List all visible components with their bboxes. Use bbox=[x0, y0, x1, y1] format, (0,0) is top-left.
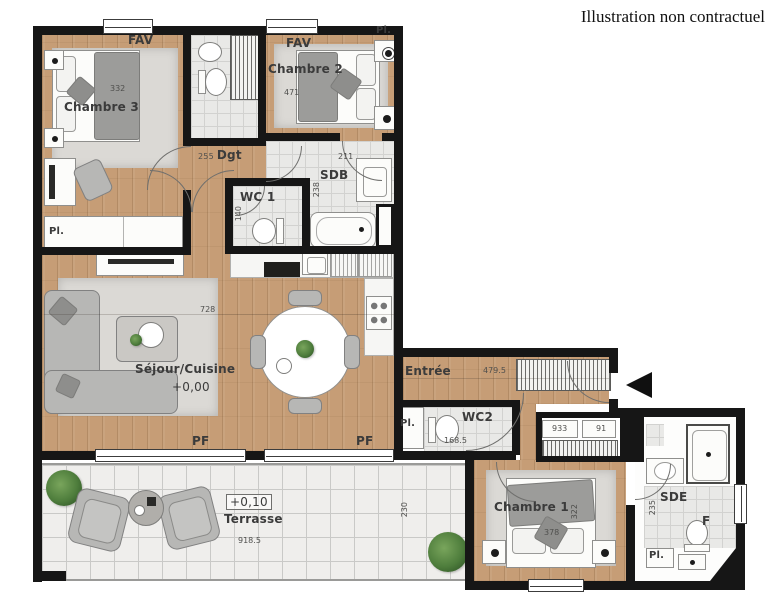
sde-dim-h: 235 bbox=[648, 500, 657, 515]
terrasse-dim-h: 230 bbox=[400, 502, 409, 517]
chambre3-closet bbox=[44, 216, 183, 248]
sdb-dim-w: 211 bbox=[338, 152, 353, 161]
chambre3-blanket bbox=[94, 52, 140, 140]
wall bbox=[626, 505, 635, 590]
chambre1-nightstand2 bbox=[592, 540, 616, 564]
wall bbox=[183, 26, 191, 146]
chambre1-label: Chambre 1 bbox=[494, 500, 569, 514]
entree-label: Entrée bbox=[405, 364, 451, 378]
chambre3-nightstand bbox=[44, 50, 64, 70]
wall bbox=[33, 451, 95, 460]
wall bbox=[626, 412, 635, 462]
sdb-label: SDB bbox=[320, 168, 348, 182]
terrasse-table bbox=[128, 490, 164, 526]
wall bbox=[736, 417, 745, 484]
chambre2-window-label: FAV bbox=[286, 36, 311, 50]
kitchen-drainer bbox=[330, 253, 358, 277]
chambre1-nightstand bbox=[482, 540, 506, 564]
wall bbox=[258, 26, 266, 138]
wc1-toilet-tank bbox=[276, 218, 284, 244]
wall bbox=[394, 451, 516, 460]
tv bbox=[108, 259, 174, 264]
chambre2-closet-label: Pl. bbox=[376, 25, 391, 36]
dgt-dim: 255 bbox=[198, 152, 214, 161]
sejour-pf2-label: PF bbox=[356, 434, 373, 448]
wall bbox=[465, 581, 528, 590]
wall bbox=[225, 246, 403, 254]
wall bbox=[609, 357, 618, 373]
terrasse-dim-w: 918.5 bbox=[238, 536, 261, 545]
sde-closet-label: Pl. bbox=[649, 550, 664, 561]
chambre1-dim-w: 378 bbox=[544, 528, 559, 537]
coffee-table-plant bbox=[130, 334, 142, 346]
terrasse-label: Terrasse bbox=[224, 512, 283, 526]
entrance-arrow-icon bbox=[626, 372, 652, 398]
wall bbox=[635, 417, 644, 462]
chambre1-window bbox=[528, 579, 584, 592]
wc2-closet-label: Pl. bbox=[400, 418, 415, 429]
wall bbox=[302, 178, 310, 246]
coffee-table-tray bbox=[138, 322, 164, 348]
chambre3-desk bbox=[44, 158, 76, 206]
chambre2-label: Chambre 2 bbox=[268, 62, 343, 76]
sde-shower bbox=[686, 424, 730, 484]
floor-plan: Illustration non contractuel FAV Chambre… bbox=[0, 0, 771, 600]
kitchen-stove bbox=[366, 296, 392, 330]
chambre3-closet-label: Pl. bbox=[49, 226, 64, 237]
kitchen-dish-rack bbox=[358, 253, 392, 277]
wc2-label: WC2 bbox=[462, 410, 493, 424]
sdb-closet bbox=[376, 204, 394, 248]
dining-chair-left bbox=[250, 335, 266, 369]
bathroom-top-toilet bbox=[205, 68, 227, 96]
wall bbox=[33, 571, 66, 581]
sejour-window-pf2 bbox=[264, 449, 394, 462]
dining-chair-bottom bbox=[288, 398, 322, 414]
dining-chair-right bbox=[344, 335, 360, 369]
chambre2-pillow2 bbox=[356, 88, 376, 120]
entree-dim: 479.5 bbox=[483, 366, 506, 375]
chambre3-window bbox=[103, 19, 153, 34]
chambre1-dim-h: 322 bbox=[570, 504, 579, 519]
kitchen-appliance-dark bbox=[264, 262, 300, 277]
dining-table-plate bbox=[276, 358, 292, 374]
dining-chair-top bbox=[288, 290, 322, 306]
wall bbox=[394, 348, 618, 357]
terrasse-level: +0,10 bbox=[226, 494, 272, 510]
sde-corner-tile bbox=[646, 424, 664, 446]
dgt-label: 255Dgt bbox=[198, 148, 242, 162]
kitchen-sink bbox=[302, 253, 328, 275]
sejour-pf1-label: PF bbox=[192, 434, 209, 448]
sde-window-label: F bbox=[702, 514, 710, 528]
sde-cabinet bbox=[678, 554, 706, 570]
wall bbox=[266, 133, 340, 141]
sejour-dim: 728 bbox=[200, 305, 215, 314]
plan-disclaimer: Illustration non contractuel bbox=[581, 7, 765, 27]
wc1-dim: 140 bbox=[234, 206, 243, 221]
sde-label: SDE bbox=[660, 490, 687, 504]
chambre2-dim: 471 bbox=[284, 88, 299, 97]
wall bbox=[382, 133, 403, 141]
wall bbox=[536, 412, 542, 462]
wall bbox=[394, 357, 403, 460]
wall bbox=[33, 26, 403, 35]
entree-closet-dim: 933 bbox=[552, 424, 567, 433]
chambre3-window-label: FAV bbox=[128, 33, 153, 47]
terrasse-plant2 bbox=[428, 532, 468, 572]
wall bbox=[626, 581, 745, 590]
sejour-dim-line bbox=[44, 314, 394, 315]
wc1-label: WC 1 bbox=[240, 190, 275, 204]
wc2-dim: 168.5 bbox=[444, 436, 467, 445]
sdb-dim-h: 238 bbox=[312, 182, 321, 197]
wall bbox=[609, 408, 745, 417]
chambre3-dim: 332 bbox=[110, 84, 125, 93]
entree-hall-wood-floor bbox=[520, 404, 536, 460]
sejour-window-pf1 bbox=[95, 449, 246, 462]
wall bbox=[536, 456, 626, 462]
chambre2-window bbox=[266, 19, 318, 34]
sde-toilet-tank bbox=[684, 544, 710, 552]
entree-closet-dim2: 91 bbox=[596, 424, 606, 433]
wall bbox=[465, 460, 474, 590]
wall bbox=[33, 247, 191, 255]
sdb-bathtub bbox=[310, 212, 376, 248]
chambre3-nightstand2 bbox=[44, 128, 64, 148]
bathroom-top-sink bbox=[198, 42, 222, 62]
wc1-toilet bbox=[252, 218, 276, 244]
sejour-label: Séjour/Cuisine bbox=[135, 362, 235, 376]
wall bbox=[394, 26, 403, 357]
sde-window bbox=[734, 484, 747, 524]
sejour-level: +0,00 bbox=[172, 380, 210, 394]
tv-stand bbox=[96, 254, 184, 276]
wardrobe-top bbox=[230, 35, 260, 100]
dining-table-plant bbox=[296, 340, 314, 358]
wall bbox=[183, 138, 266, 146]
chambre3-label: Chambre 3 bbox=[64, 100, 139, 114]
wall bbox=[246, 451, 264, 460]
wall bbox=[584, 581, 635, 590]
wall bbox=[33, 26, 42, 582]
